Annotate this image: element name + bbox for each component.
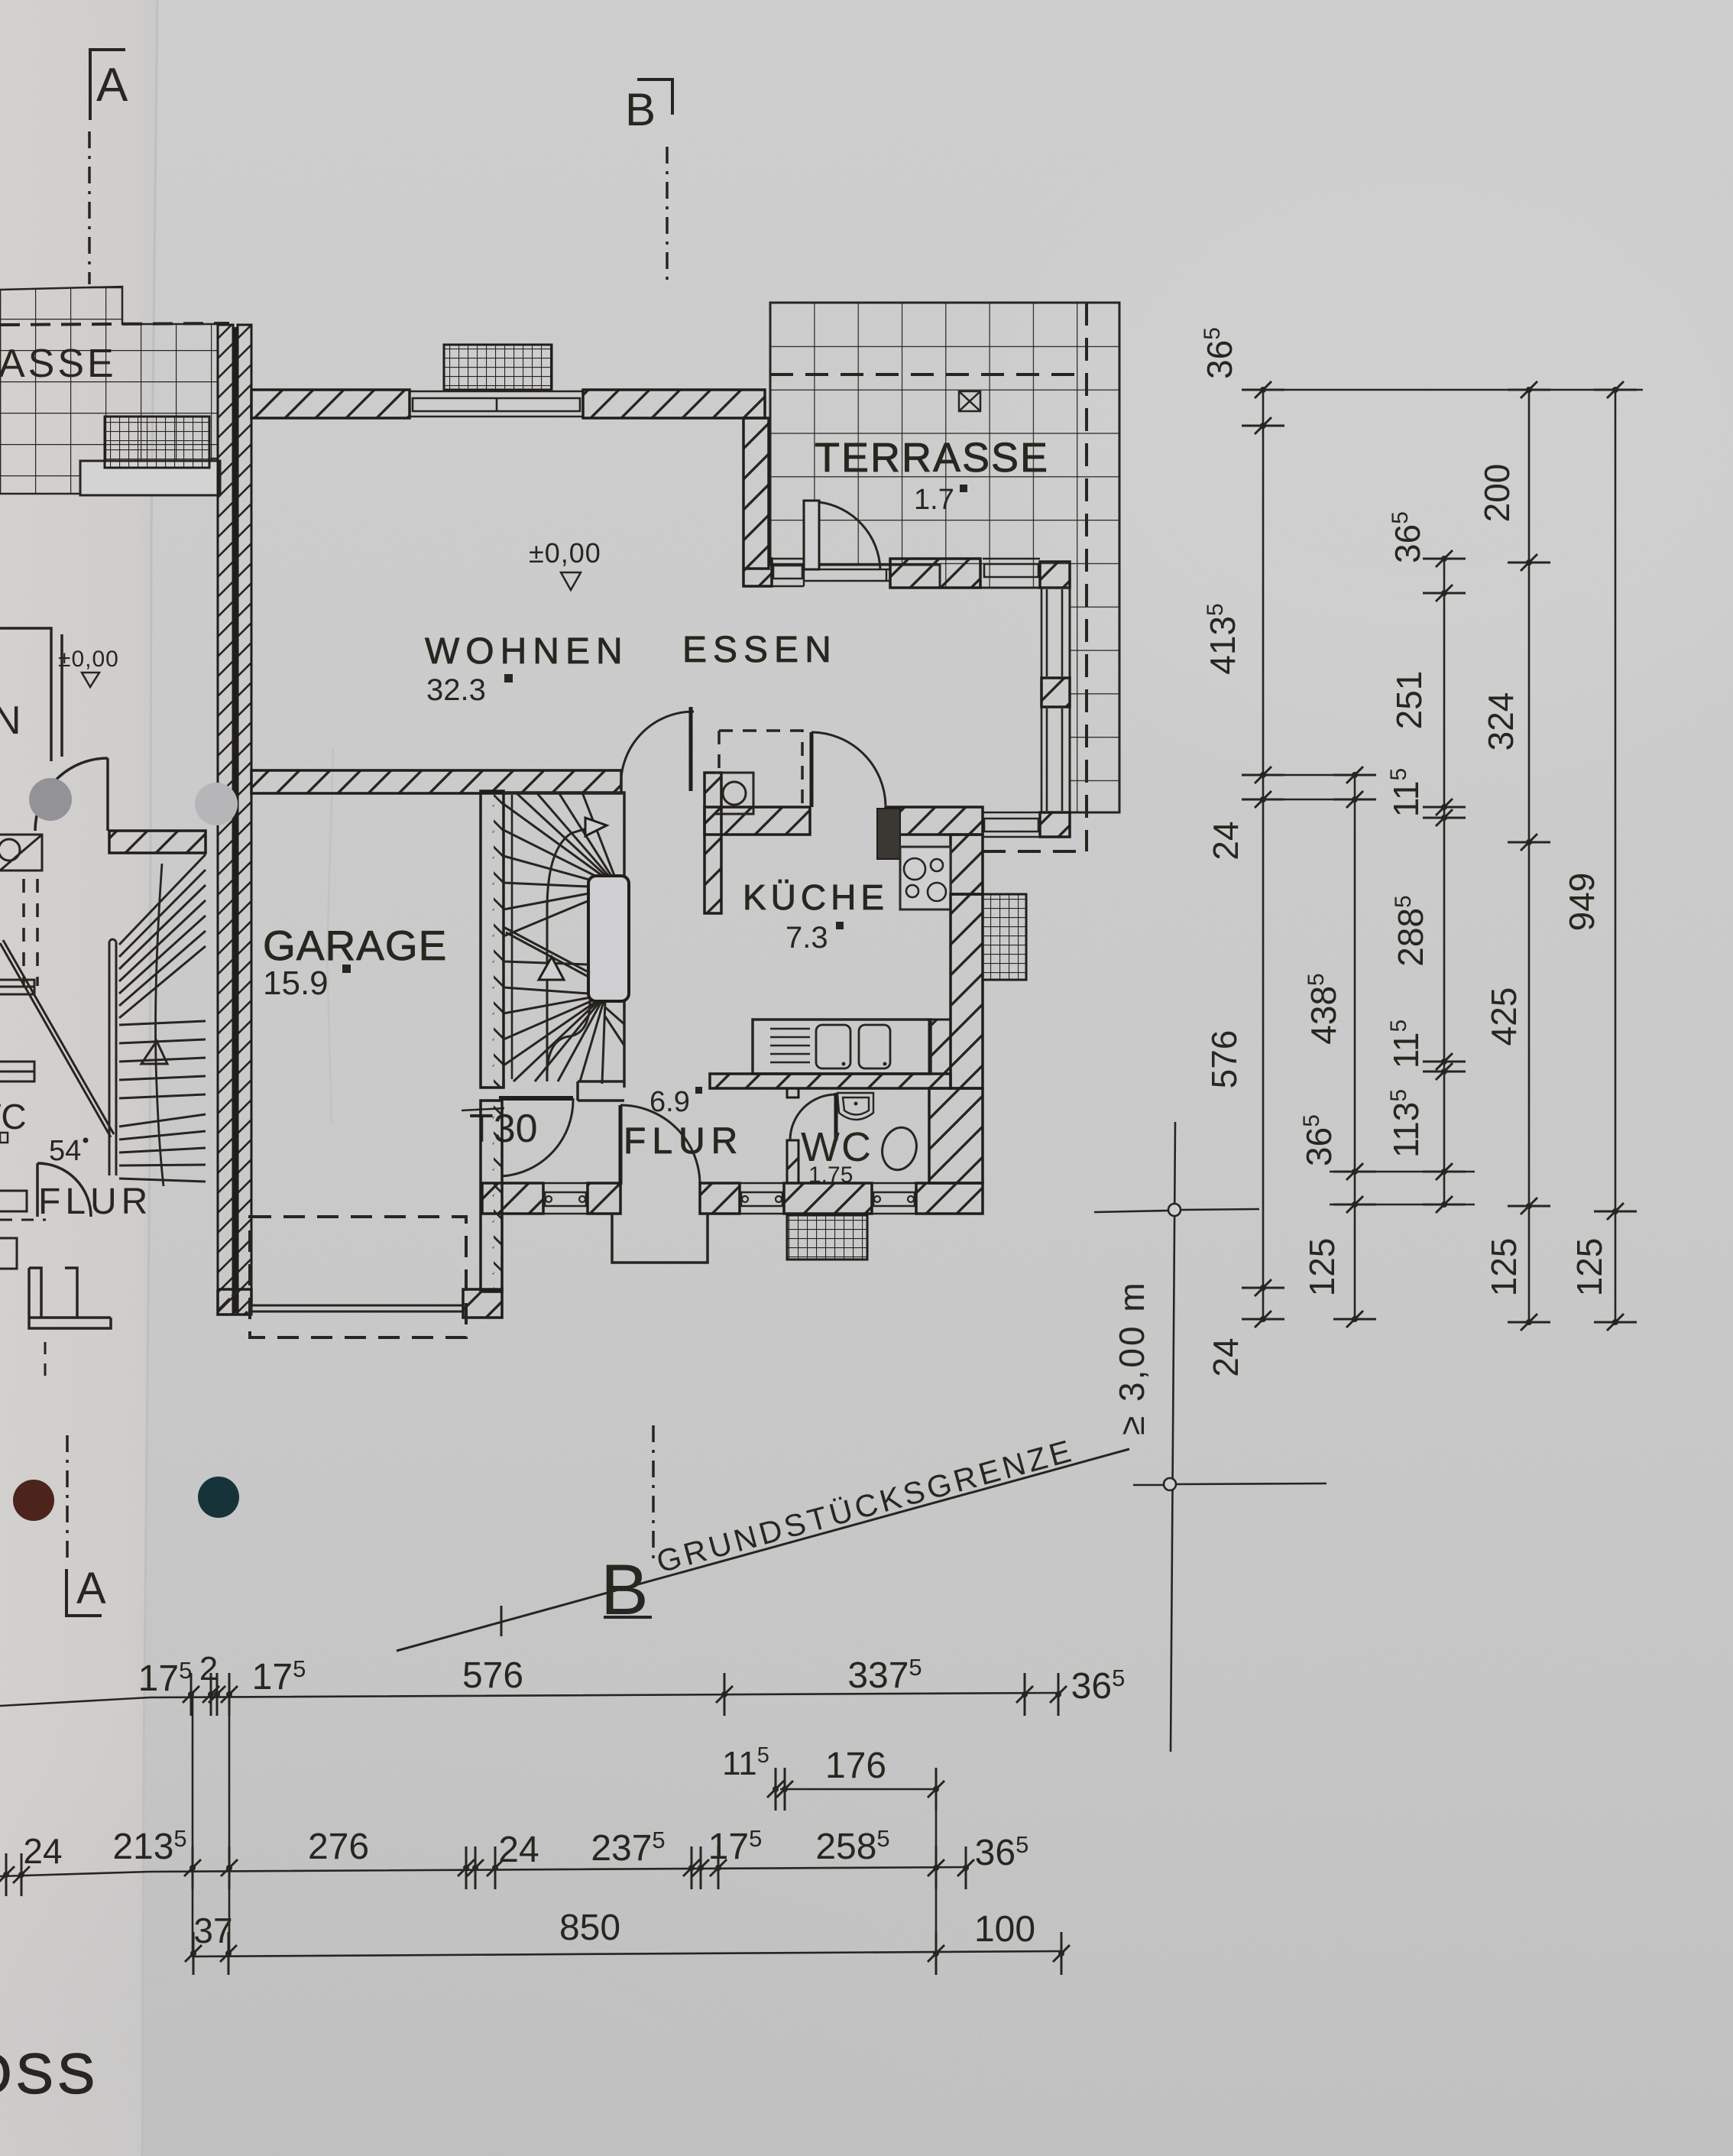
svg-text:A: A [96, 59, 128, 112]
svg-text:576: 576 [462, 1655, 523, 1696]
svg-text:125: 125 [1484, 1238, 1524, 1297]
svg-text:7.3: 7.3 [786, 921, 828, 955]
svg-text:54: 54 [49, 1135, 81, 1167]
svg-text:251: 251 [1389, 671, 1429, 730]
svg-text:B: B [625, 84, 656, 135]
svg-text:GARAGE: GARAGE [263, 922, 447, 969]
svg-text:≥ 3,00 m: ≥ 3,00 m [1112, 1280, 1152, 1435]
svg-text:850: 850 [559, 1908, 620, 1948]
svg-text:KÜCHE: KÜCHE [743, 877, 889, 917]
svg-text:324: 324 [1481, 692, 1521, 751]
svg-text:1.7: 1.7 [914, 484, 954, 516]
svg-text:ASSE: ASSE [0, 342, 117, 386]
svg-text:200: 200 [1477, 464, 1517, 523]
svg-text:125: 125 [1302, 1238, 1342, 1297]
svg-text:TERRASSE: TERRASSE [815, 435, 1049, 481]
svg-text:125: 125 [1569, 1238, 1609, 1297]
svg-text:276: 276 [308, 1827, 369, 1867]
svg-text:WOHNEN: WOHNEN [425, 631, 629, 672]
svg-text:24: 24 [1206, 821, 1245, 860]
svg-text:24: 24 [1206, 1337, 1245, 1376]
svg-text:±0,00: ±0,00 [58, 647, 119, 672]
svg-text:24: 24 [498, 1830, 539, 1870]
svg-text:37: 37 [193, 1911, 232, 1950]
svg-text:WC: WC [0, 1097, 27, 1136]
svg-text:OSS: OSS [0, 2042, 99, 2106]
svg-text:15.9: 15.9 [263, 965, 329, 1002]
svg-text:24: 24 [23, 1831, 62, 1871]
svg-text:FLUR: FLUR [624, 1121, 743, 1162]
svg-text:6.9: 6.9 [649, 1086, 690, 1118]
svg-text:±0,00: ±0,00 [529, 537, 601, 569]
svg-text:176: 176 [825, 1746, 886, 1786]
svg-text:A: A [76, 1564, 106, 1613]
svg-text:ESSEN: ESSEN [682, 630, 837, 670]
svg-text:425: 425 [1484, 987, 1524, 1046]
svg-text:100: 100 [974, 1909, 1035, 1950]
svg-text:32.3: 32.3 [426, 673, 486, 707]
svg-text:FLUR: FLUR [38, 1182, 152, 1222]
svg-text:576: 576 [1204, 1030, 1244, 1089]
svg-text:2: 2 [199, 1650, 218, 1688]
svg-text:N: N [0, 699, 21, 743]
svg-text:949: 949 [1562, 873, 1602, 932]
